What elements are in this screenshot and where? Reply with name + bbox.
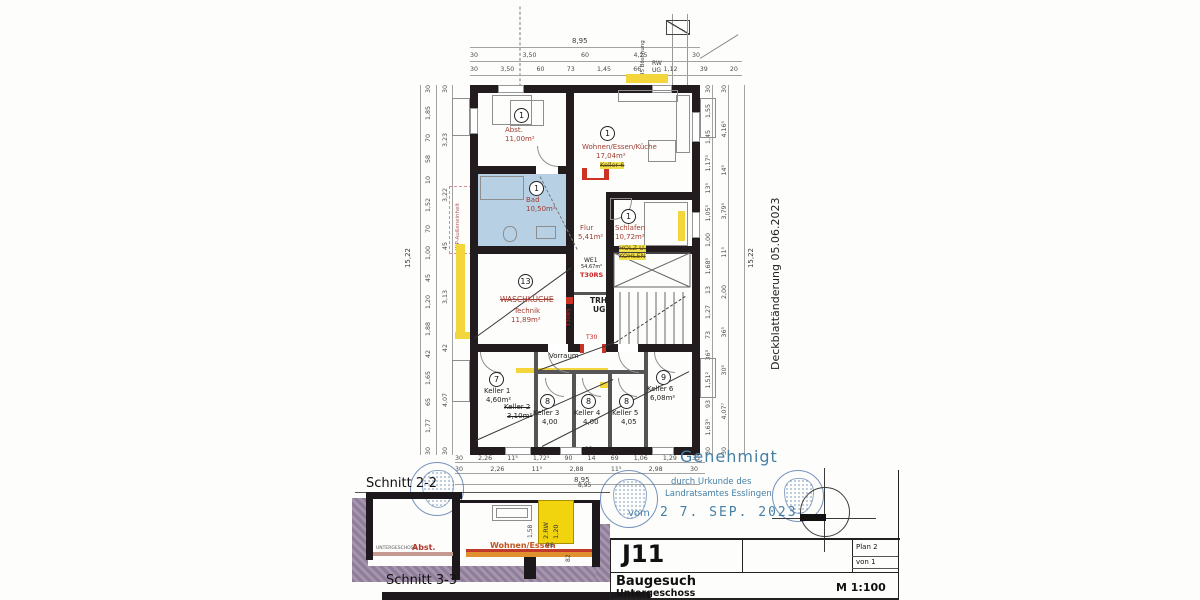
dimension-value: 30 bbox=[425, 85, 432, 93]
dimension-value: 30 bbox=[721, 85, 728, 93]
dim-line bbox=[744, 85, 745, 455]
room-number-keller1: 7 bbox=[489, 372, 504, 387]
dimension-value: 4,16⁵ bbox=[721, 121, 728, 138]
round-stamp-icon bbox=[600, 470, 658, 528]
door-opening bbox=[536, 166, 558, 174]
room-area-keller3: 4,00 bbox=[542, 419, 558, 426]
dimension-value: 10 bbox=[425, 176, 432, 184]
dimension-value: 3,50 bbox=[522, 52, 536, 59]
dimension-value: 69 bbox=[611, 455, 619, 462]
dim-row-top-1: 303,50604,2530 bbox=[470, 52, 700, 59]
room-name-keller1: Keller 1 bbox=[484, 388, 510, 395]
plan-number: Plan 2 bbox=[856, 544, 878, 551]
dimension-value: 60 bbox=[536, 66, 544, 73]
slope-note: 45 Böschung bbox=[641, 30, 647, 76]
door-arc bbox=[537, 146, 558, 167]
dimension-value: 3,13 bbox=[442, 290, 449, 304]
wall bbox=[566, 85, 574, 173]
room-name-abst: Abst. bbox=[505, 127, 523, 134]
dimension-value: 30 bbox=[470, 66, 478, 73]
rw-duct-width: 1,20 bbox=[553, 503, 560, 539]
dimension-value: 30 bbox=[442, 447, 449, 455]
dimension-value: 65 bbox=[425, 398, 432, 406]
dimension-value: 30 bbox=[425, 447, 432, 455]
section-room-abst: Abst. bbox=[412, 544, 436, 552]
room-number-abst: 1 bbox=[514, 108, 529, 123]
dimension-value: 1,27 bbox=[705, 305, 712, 319]
dim-line bbox=[455, 473, 705, 474]
room-area-keller5: 4,05 bbox=[621, 419, 637, 426]
fire-door-jamb bbox=[580, 344, 584, 353]
dimension-value: 2,26 bbox=[478, 455, 492, 462]
titleblock-border bbox=[610, 538, 611, 600]
door-opening bbox=[548, 344, 568, 352]
door-arc bbox=[480, 352, 501, 373]
approval-line3: Landratsamtes Esslingen bbox=[665, 490, 772, 499]
dimension-value: 14⁵ bbox=[721, 165, 728, 176]
dimension-value: 30 bbox=[690, 466, 698, 473]
section-wall bbox=[592, 503, 600, 567]
light-shaft bbox=[700, 358, 716, 398]
we1-door-rating: T30RS bbox=[580, 272, 603, 279]
dimension-value: 2,88 bbox=[569, 466, 583, 473]
sink-icon bbox=[536, 226, 556, 239]
dim-line bbox=[470, 61, 742, 62]
dimension-value: 1,63⁵ bbox=[705, 419, 712, 436]
dim-col-right-outer: 301,551,451,17⁵13⁵1,05⁵1,001,68⁵131,2773… bbox=[702, 85, 714, 455]
room-old-schlafen-2: KOHLEN bbox=[619, 253, 646, 260]
dimension-value: 60 bbox=[581, 52, 589, 59]
dimension-value: 58 bbox=[425, 155, 432, 163]
dimension-value: 93 bbox=[705, 400, 712, 408]
compass-icon bbox=[800, 487, 850, 537]
dimension-value: 1,65 bbox=[425, 371, 432, 385]
stamp-shield-icon bbox=[613, 479, 646, 519]
dimension-value: 73 bbox=[705, 331, 712, 339]
dim-row-bottom-1: 302,2611⁵1,72⁵9014691,061,2935 bbox=[455, 455, 700, 462]
dimension-value: 13⁵ bbox=[705, 183, 712, 194]
dim-total-top: 8,95 bbox=[572, 38, 588, 45]
kitchen-counter bbox=[676, 95, 690, 153]
dimension-value: 1,06 bbox=[634, 455, 648, 462]
dimension-value: 1,88 bbox=[425, 322, 432, 336]
sheet-frame bbox=[898, 470, 899, 600]
dimension-value: 70 bbox=[425, 225, 432, 233]
dimension-value: 2,98 bbox=[649, 466, 663, 473]
floor-plan-sheet: 8,95 303,50604,2530 303,5060731,45661,12… bbox=[0, 0, 1200, 600]
window bbox=[470, 108, 478, 134]
highlight-left-wall bbox=[456, 244, 465, 336]
dimension-value: 39 bbox=[700, 66, 708, 73]
titleblock-border bbox=[610, 572, 898, 573]
section-wall bbox=[460, 500, 600, 503]
dim-line bbox=[470, 47, 700, 48]
room-number-keller6: 9 bbox=[656, 370, 671, 385]
room-name-keller5: Keller 5 bbox=[612, 410, 638, 417]
dim-col-left-inner: 303,233,22453,13424,0730 bbox=[439, 85, 451, 455]
dimension-value: 30 bbox=[455, 455, 463, 462]
dimension-value: 1,00 bbox=[705, 233, 712, 247]
dim-line bbox=[455, 462, 705, 463]
room-area-keller6: 6,08m² bbox=[650, 395, 675, 402]
dimension-value: 42 bbox=[442, 344, 449, 352]
dimension-value: 1,17⁵ bbox=[705, 155, 712, 172]
wp-unit-label: WP-Außeneinheit bbox=[456, 190, 462, 250]
room-number-schlafen: 1 bbox=[621, 209, 636, 224]
room-old-technik: WASCHKÜCHE bbox=[500, 296, 554, 304]
dimension-value: 11⁵ bbox=[507, 455, 518, 462]
section-floor bbox=[373, 552, 453, 556]
room-name-technik: Technik bbox=[514, 308, 540, 315]
section-33-label: Schnitt 3-3 bbox=[386, 574, 457, 588]
room-name-vorraum: Vorraum bbox=[549, 353, 579, 360]
room-number-keller3: 8 bbox=[540, 394, 555, 409]
section-floor-label: UNTERGESCHOSS bbox=[376, 547, 416, 552]
partition bbox=[534, 352, 538, 447]
dimension-value: 3,79⁵ bbox=[721, 203, 728, 220]
light-shaft bbox=[452, 98, 470, 136]
room-area-abst: 11,00m² bbox=[505, 136, 535, 143]
section-wall bbox=[452, 492, 460, 580]
titleblock-border bbox=[852, 556, 898, 557]
room-number-keller5: 8 bbox=[619, 394, 634, 409]
room-number-technik: 13 bbox=[518, 274, 533, 289]
section-22-label: Schnitt 2-2 bbox=[366, 477, 437, 491]
window bbox=[560, 447, 582, 455]
dimension-value: 3,22 bbox=[442, 188, 449, 202]
revision-note: Deckblattänderung 05.06.2023 bbox=[770, 195, 782, 370]
room-old-wohnen: Keller 6 bbox=[600, 162, 624, 169]
compass-bar bbox=[800, 514, 826, 521]
dim-row-top-2: 303,5060731,45661,123920 bbox=[470, 66, 738, 73]
bed-icon bbox=[644, 202, 688, 246]
t30rs-vertical: T30RS bbox=[567, 300, 573, 326]
room-area-keller2: 3,10m² bbox=[507, 413, 532, 420]
section-wall bbox=[366, 492, 462, 499]
slope-tick bbox=[700, 34, 739, 59]
dim-line bbox=[420, 85, 421, 455]
light-shaft bbox=[700, 98, 716, 138]
scale-label: M 1:100 bbox=[836, 582, 886, 594]
toilet-icon bbox=[503, 226, 517, 242]
dim-row-bottom-2: 302,2611⁵2,8811⁵2,9830 bbox=[455, 466, 698, 473]
dimension-value: 1,72⁵ bbox=[533, 455, 550, 462]
titleblock-border bbox=[742, 540, 743, 572]
stairs bbox=[612, 252, 692, 346]
kitchen-counter bbox=[618, 90, 678, 102]
dimension-value: 1,05⁵ bbox=[705, 205, 712, 222]
window bbox=[498, 85, 524, 93]
dimension-value: 1,52 bbox=[425, 198, 432, 212]
dimension-value: 70 bbox=[425, 134, 432, 142]
dimension-value: 11⁵ bbox=[532, 466, 543, 473]
room-name-keller3: Keller 3 bbox=[533, 410, 559, 417]
dimension-value: 2,00 bbox=[721, 285, 728, 299]
rw-dim-158: 1,58 bbox=[528, 508, 534, 538]
bathtub-icon bbox=[480, 176, 524, 200]
room-name-schlafen: Schlafen bbox=[615, 225, 645, 232]
project-title: Baugesuch bbox=[616, 575, 696, 589]
partition bbox=[644, 352, 648, 447]
t30-label: T30 bbox=[586, 335, 597, 341]
dimension-value: 1,00 bbox=[425, 246, 432, 260]
dimension-value: 20 bbox=[730, 66, 738, 73]
wall bbox=[470, 246, 574, 254]
window bbox=[692, 212, 700, 238]
room-number-wohnen: 1 bbox=[600, 126, 615, 141]
section-window-inner bbox=[496, 508, 528, 518]
titleblock-border bbox=[852, 568, 898, 569]
dimension-value: 1,29 bbox=[663, 455, 677, 462]
room-name-wohnen: Wohnen/Essen/Küche bbox=[582, 144, 657, 151]
section-dim-total: 8,95 bbox=[578, 483, 591, 489]
trh-label-1: TRH bbox=[590, 297, 607, 305]
room-old-schlafen-1: HOLZ U. bbox=[619, 245, 646, 252]
dimension-value: 11⁵ bbox=[721, 247, 728, 258]
room-name-keller2: Keller 2 bbox=[504, 404, 530, 411]
dimension-value: 1,20 bbox=[425, 295, 432, 309]
highlight-rw-ug bbox=[626, 74, 668, 83]
dim-col-right-inner: 304,16⁵14⁵3,79⁵11⁵2,0036⁵30⁵4,07⁷30 bbox=[718, 85, 730, 455]
dim-total-left: 15,22 bbox=[405, 248, 412, 268]
dimension-value: 30 bbox=[692, 52, 700, 59]
dimension-value: 13 bbox=[705, 286, 712, 294]
dimension-value: 45 bbox=[425, 274, 432, 282]
dimension-value: 1,77 bbox=[425, 419, 432, 433]
window bbox=[692, 112, 700, 142]
sheet-level: Untergeschoss bbox=[616, 589, 695, 599]
plan-von: von 1 bbox=[856, 559, 876, 566]
fire-door-sill bbox=[582, 178, 609, 180]
dimension-value: 4,07 bbox=[442, 393, 449, 407]
room-area-flur: 5,41m² bbox=[578, 234, 603, 241]
dimension-value: 3,50 bbox=[500, 66, 514, 73]
room-name-bad: Bad bbox=[526, 197, 540, 204]
dim-line bbox=[470, 75, 742, 76]
dimension-value: 14 bbox=[588, 455, 596, 462]
approval-line2: durch Urkunde des bbox=[671, 478, 751, 487]
dimension-value: 90 bbox=[564, 455, 572, 462]
partition bbox=[574, 292, 606, 295]
we1-area: 54,67m² bbox=[581, 265, 602, 270]
dimension-value: 1,85 bbox=[425, 106, 432, 120]
dimension-value: 2,26 bbox=[490, 466, 504, 473]
sheet-code: J11 bbox=[622, 542, 664, 567]
dim-line bbox=[436, 85, 437, 455]
dim-total-right: 15,22 bbox=[748, 248, 755, 268]
light-shaft bbox=[452, 360, 470, 402]
trh-label-2: UG bbox=[593, 306, 605, 314]
room-area-keller4: 4,00 bbox=[583, 419, 599, 426]
dimension-value: 30 bbox=[705, 85, 712, 93]
dimension-value: 30 bbox=[442, 85, 449, 93]
dimension-value: 36⁵ bbox=[721, 327, 728, 338]
room-name-keller6: Keller 6 bbox=[647, 386, 673, 393]
wall bbox=[470, 85, 478, 455]
dimension-value: 30 bbox=[470, 52, 478, 59]
rw-dim-82: 82 bbox=[566, 546, 572, 562]
window bbox=[505, 447, 531, 455]
room-area-bad: 10,50m² bbox=[526, 206, 556, 213]
dimension-value: 1,45 bbox=[597, 66, 611, 73]
dimension-value: 3,23 bbox=[442, 133, 449, 147]
room-name-flur: Flur bbox=[580, 225, 593, 232]
rw-dim-96: 96 bbox=[546, 543, 554, 549]
section-pillar bbox=[524, 557, 536, 579]
dimension-value: 1,68⁵ bbox=[705, 258, 712, 275]
window bbox=[652, 447, 674, 455]
rw-duct-label: 2.RW bbox=[543, 503, 550, 539]
dimension-value: 1,12 bbox=[663, 66, 677, 73]
dimension-value: 73 bbox=[567, 66, 575, 73]
room-number-bad: 1 bbox=[529, 181, 544, 196]
room-number-keller4: 8 bbox=[581, 394, 596, 409]
room-area-schlafen: 10,72m² bbox=[615, 234, 645, 241]
approval-title: Genehmigt bbox=[680, 449, 778, 466]
room-area-wohnen: 17,04m² bbox=[596, 153, 626, 160]
wall bbox=[470, 166, 574, 174]
dimension-value: 4,07⁷ bbox=[721, 403, 728, 420]
dim-col-left-outer: 301,857058101,52701,00451,201,88421,6565… bbox=[422, 85, 434, 455]
room-name-keller4: Keller 4 bbox=[574, 410, 600, 417]
dimension-value: 45 bbox=[442, 242, 449, 250]
section-wall bbox=[366, 492, 373, 560]
room-area-technik: 11,89m² bbox=[511, 317, 541, 324]
dimension-value: 42 bbox=[425, 350, 432, 358]
dimension-value: 30⁵ bbox=[721, 365, 728, 376]
